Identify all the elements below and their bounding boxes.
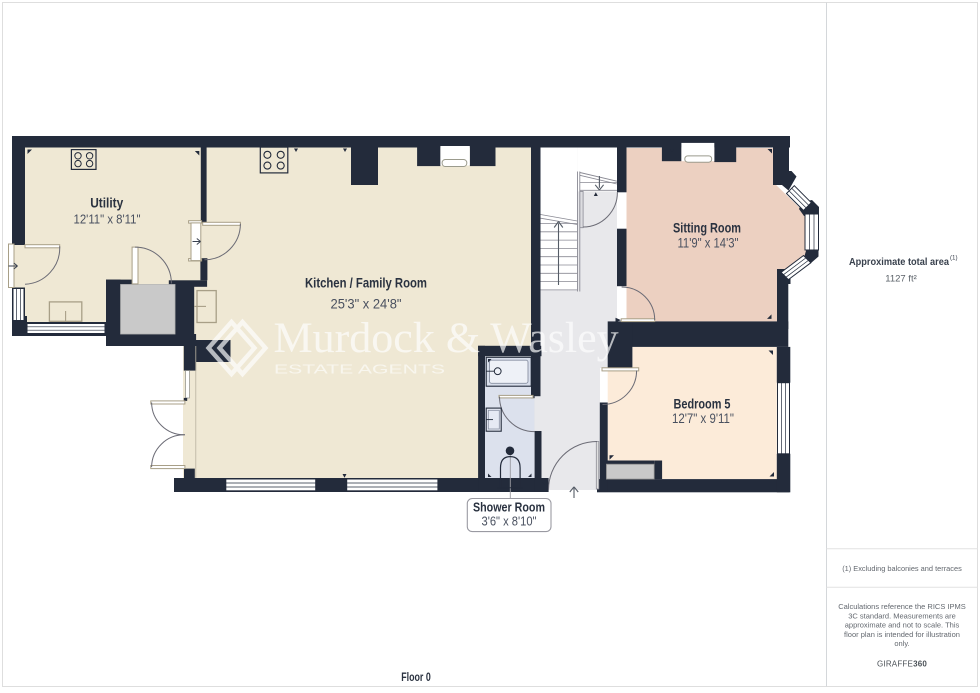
svg-text:Kitchen / Family Room: Kitchen / Family Room (305, 275, 427, 291)
svg-text:Approximate total area: Approximate total area (849, 257, 949, 268)
svg-text:Murdock & Wasley: Murdock & Wasley (274, 315, 620, 362)
svg-text:12'11" x 8'11": 12'11" x 8'11" (74, 212, 141, 227)
svg-text:Bedroom 5: Bedroom 5 (674, 396, 731, 412)
svg-text:12'7" x 9'11": 12'7" x 9'11" (672, 411, 734, 426)
svg-text:Utility: Utility (90, 196, 123, 211)
svg-text:GIRAFFE360: GIRAFFE360 (877, 660, 927, 669)
svg-text:3C standard. Measurements are: 3C standard. Measurements are (848, 611, 956, 620)
svg-text:Shower Room: Shower Room (473, 501, 545, 515)
svg-text:floor plan is intended for ill: floor plan is intended for illustration (844, 630, 960, 639)
svg-text:approximate and not to scale.: approximate and not to scale. This (845, 621, 960, 630)
svg-text:only.: only. (894, 639, 909, 648)
svg-text:25'3" x 24'8": 25'3" x 24'8" (331, 297, 402, 312)
svg-text:3'6" x 8'10": 3'6" x 8'10" (482, 514, 537, 528)
svg-text:(1) Excluding balconies and te: (1) Excluding balconies and terraces (842, 564, 962, 573)
svg-text:1127 ft²: 1127 ft² (885, 274, 917, 285)
svg-text:11'9" x 14'3": 11'9" x 14'3" (678, 236, 739, 251)
svg-text:Sitting Room: Sitting Room (673, 220, 741, 236)
svg-text:ESTATE AGENTS: ESTATE AGENTS (274, 362, 446, 377)
svg-text:Calculations reference the RIC: Calculations reference the RICS IPMS (838, 602, 966, 611)
svg-text:Floor 0: Floor 0 (401, 672, 431, 684)
svg-text:(1): (1) (950, 255, 958, 262)
